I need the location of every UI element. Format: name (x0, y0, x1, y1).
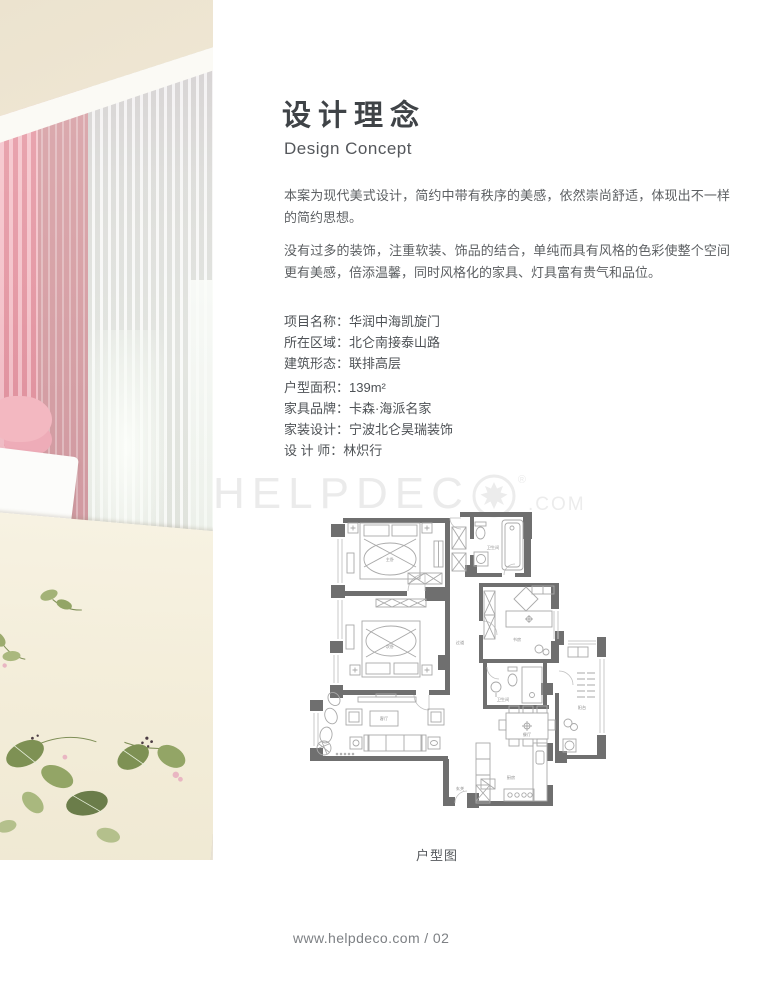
project-info-row: 家装设计：宁波北仑昊瑞装饰 (284, 419, 453, 440)
info-separator: ： (336, 401, 349, 416)
project-info-list: 项目名称：华润中海凯旋门 所在区域：北仑南接泰山路 建筑形态：联排高层 户型面积… (284, 311, 453, 461)
registered-mark: ® (518, 474, 526, 486)
room-label: 过道 (456, 639, 465, 646)
project-info-row: 项目名称：华润中海凯旋门 (284, 311, 453, 332)
info-label: 家装设计 (284, 422, 336, 437)
room-label: 阳台 (578, 704, 586, 711)
info-label: 设 计 师 (284, 443, 330, 458)
intro-paragraph-1: 本案为现代美式设计，简约中带有秩序的美感，依然崇尚舒适，体现出不一样的简约思想。 (284, 185, 730, 229)
room-label: 卫生间 (497, 696, 510, 703)
info-label: 项目名称 (284, 314, 336, 329)
room-label: 书房 (513, 636, 521, 643)
info-value: 华润中海凯旋门 (349, 314, 440, 329)
room-label: 卫生间 (487, 544, 500, 551)
brochure-page: 设计理念 Design Concept 本案为现代美式设计，简约中带有秩序的美感… (0, 0, 762, 1000)
room-label: 餐厅 (523, 731, 531, 738)
project-info-row: 户型面积：139m² (284, 377, 453, 398)
info-label: 家具品牌 (284, 401, 336, 416)
bedroom-photo (0, 0, 213, 860)
info-value: 宁波北仑昊瑞装饰 (349, 422, 453, 437)
info-separator: ： (336, 314, 349, 329)
info-value: 139m² (349, 380, 386, 395)
info-label: 户型面积 (284, 380, 336, 395)
info-label: 建筑形态 (284, 356, 336, 371)
floral-bedding (0, 512, 213, 860)
leaf-pattern (0, 512, 213, 860)
info-value: 北仑南接泰山路 (349, 335, 440, 350)
room-label: 客厅 (380, 715, 388, 722)
info-separator: ： (336, 422, 349, 437)
info-separator: ： (330, 443, 343, 458)
room-label: 次卧 (386, 643, 394, 650)
floorplan-drawing: 主卧 次卧 客厅 餐厅 厨房 书房 卫生间 卫生间 阳台 玄关 过道 (310, 497, 614, 831)
room-label: 厨房 (507, 774, 515, 781)
floorplan-caption: 户型图 (284, 845, 590, 864)
page-subtitle: Design Concept (284, 139, 412, 159)
intro-paragraph-2: 没有过多的装饰，注重软装、饰品的结合，单纯而具有风格的色彩使整个空间更有美感，倍… (284, 240, 730, 284)
info-separator: ： (336, 335, 349, 350)
page-title: 设计理念 (282, 92, 426, 134)
info-value: 卡森·海派名家 (349, 401, 431, 416)
project-info-row: 建筑形态：联排高层 (284, 353, 453, 374)
project-info-row: 所在区域：北仑南接泰山路 (284, 332, 453, 353)
project-info-row: 设 计 师：林炽行 (284, 440, 453, 461)
project-info-row: 家具品牌：卡森·海派名家 (284, 398, 453, 419)
room-label: 玄关 (456, 785, 464, 792)
info-label: 所在区域 (284, 335, 336, 350)
info-separator: ： (336, 380, 349, 395)
info-value: 联排高层 (349, 356, 401, 371)
room-label: 主卧 (386, 556, 394, 563)
floorplan: 主卧 次卧 客厅 餐厅 厨房 书房 卫生间 卫生间 阳台 玄关 过道 (310, 497, 614, 831)
info-value: 林炽行 (343, 443, 382, 458)
info-separator: ： (336, 356, 349, 371)
footer-url: www.helpdeco.com / 02 (293, 930, 449, 946)
